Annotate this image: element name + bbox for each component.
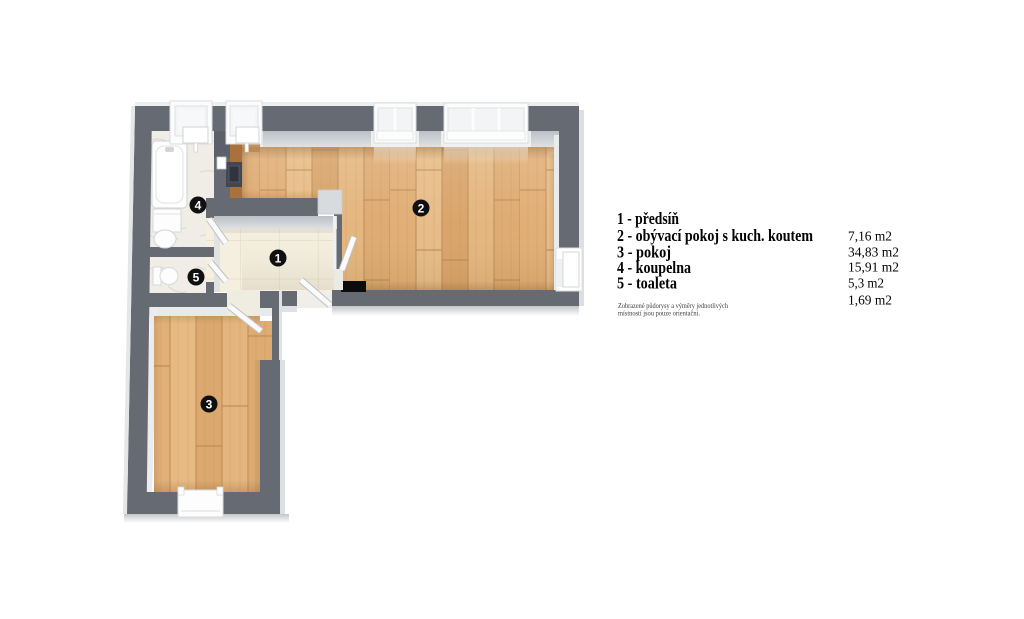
- svg-text:5,3 m2: 5,3 m2: [848, 276, 884, 291]
- svg-text:1,69 m2: 1,69 m2: [848, 293, 892, 308]
- svg-text:34,83 m2: 34,83 m2: [848, 245, 899, 260]
- svg-text:4: 4: [195, 198, 202, 212]
- svg-text:5 - toaleta: 5 - toaleta: [617, 274, 677, 293]
- svg-text:7,16 m2: 7,16 m2: [848, 229, 892, 244]
- svg-text:15,91 m2: 15,91 m2: [848, 260, 899, 275]
- svg-text:5: 5: [193, 270, 200, 284]
- svg-text:1: 1: [275, 251, 282, 265]
- svg-text:3: 3: [206, 397, 213, 411]
- svg-text:2: 2: [418, 201, 425, 215]
- svg-text:místností jsou pouze orientačn: místností jsou pouze orientační.: [618, 310, 700, 318]
